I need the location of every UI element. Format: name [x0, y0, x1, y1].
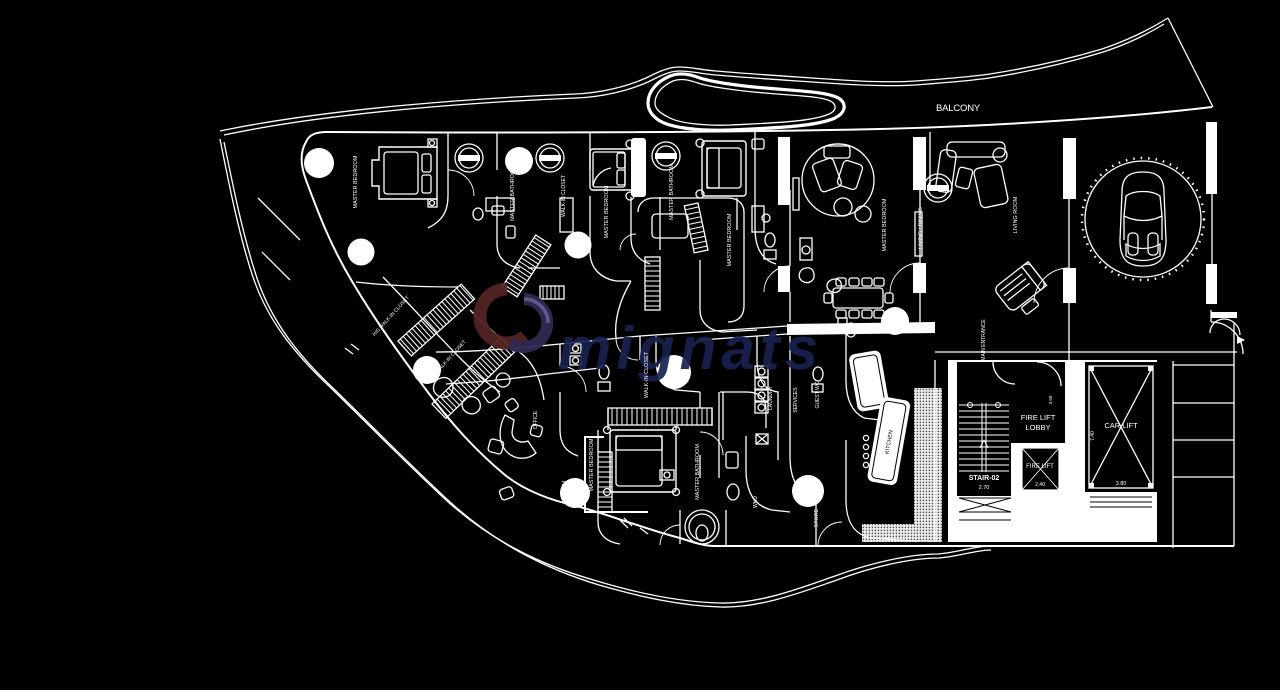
svg-text:OFFICE: OFFICE	[533, 410, 539, 429]
svg-text:3.60: 3.60	[1048, 395, 1053, 404]
svg-text:STAIR-02: STAIR-02	[969, 475, 1000, 482]
svg-text:3.80: 3.80	[1116, 481, 1127, 487]
svg-text:JACUZZI: JACUZZI	[658, 154, 674, 159]
svg-text:MASTER BATHROOM: MASTER BATHROOM	[669, 164, 675, 220]
svg-text:JACUZZI: JACUZZI	[542, 156, 558, 161]
svg-text:SERVICES: SERVICES	[793, 387, 799, 413]
svg-text:LOBBY: LOBBY	[1025, 423, 1050, 432]
svg-text:GUEST WC: GUEST WC	[815, 381, 821, 408]
svg-text:LIVING ROOM: LIVING ROOM	[1013, 196, 1019, 233]
svg-text:STORE: STORE	[814, 508, 820, 527]
svg-text:MASTER BEDROOM: MASTER BEDROOM	[882, 198, 888, 251]
svg-text:FIRE LIFT: FIRE LIFT	[1026, 464, 1054, 470]
svg-text:MASTER BEDROOM: MASTER BEDROOM	[353, 155, 359, 208]
svg-text:mignats: mignats	[558, 315, 823, 382]
svg-text:MASTER BEDROOM: MASTER BEDROOM	[727, 213, 733, 266]
svg-text:MASTER BATHROOM: MASTER BATHROOM	[695, 444, 701, 500]
svg-text:2.70: 2.70	[979, 485, 990, 491]
svg-text:JACUZZI: JACUZZI	[461, 156, 477, 161]
svg-text:WALK-IN CLOSET: WALK-IN CLOSET	[644, 351, 650, 398]
svg-text:2.40: 2.40	[1035, 482, 1045, 488]
svg-text:GYM: GYM	[562, 480, 568, 493]
svg-text:WHD: WHD	[753, 496, 759, 508]
svg-text:CAR LIFT: CAR LIFT	[1104, 421, 1138, 430]
svg-text:LAUNDRY: LAUNDRY	[768, 385, 774, 409]
svg-text:FIRE LIFT: FIRE LIFT	[1021, 413, 1056, 422]
svg-text:MASTER BATHROOM: MASTER BATHROOM	[510, 165, 516, 221]
svg-text:BALCONY: BALCONY	[936, 103, 981, 114]
svg-text:MAIN ENTRANCE: MAIN ENTRANCE	[981, 319, 987, 361]
svg-text:LIVING / DINING: LIVING / DINING	[918, 207, 924, 249]
svg-text:7.40: 7.40	[1090, 431, 1096, 441]
svg-text:MASTER BEDROOM: MASTER BEDROOM	[589, 438, 595, 491]
svg-text:WALK-IN CLOSET: WALK-IN CLOSET	[561, 175, 567, 217]
svg-text:MASTER BEDROOM: MASTER BEDROOM	[604, 185, 610, 238]
